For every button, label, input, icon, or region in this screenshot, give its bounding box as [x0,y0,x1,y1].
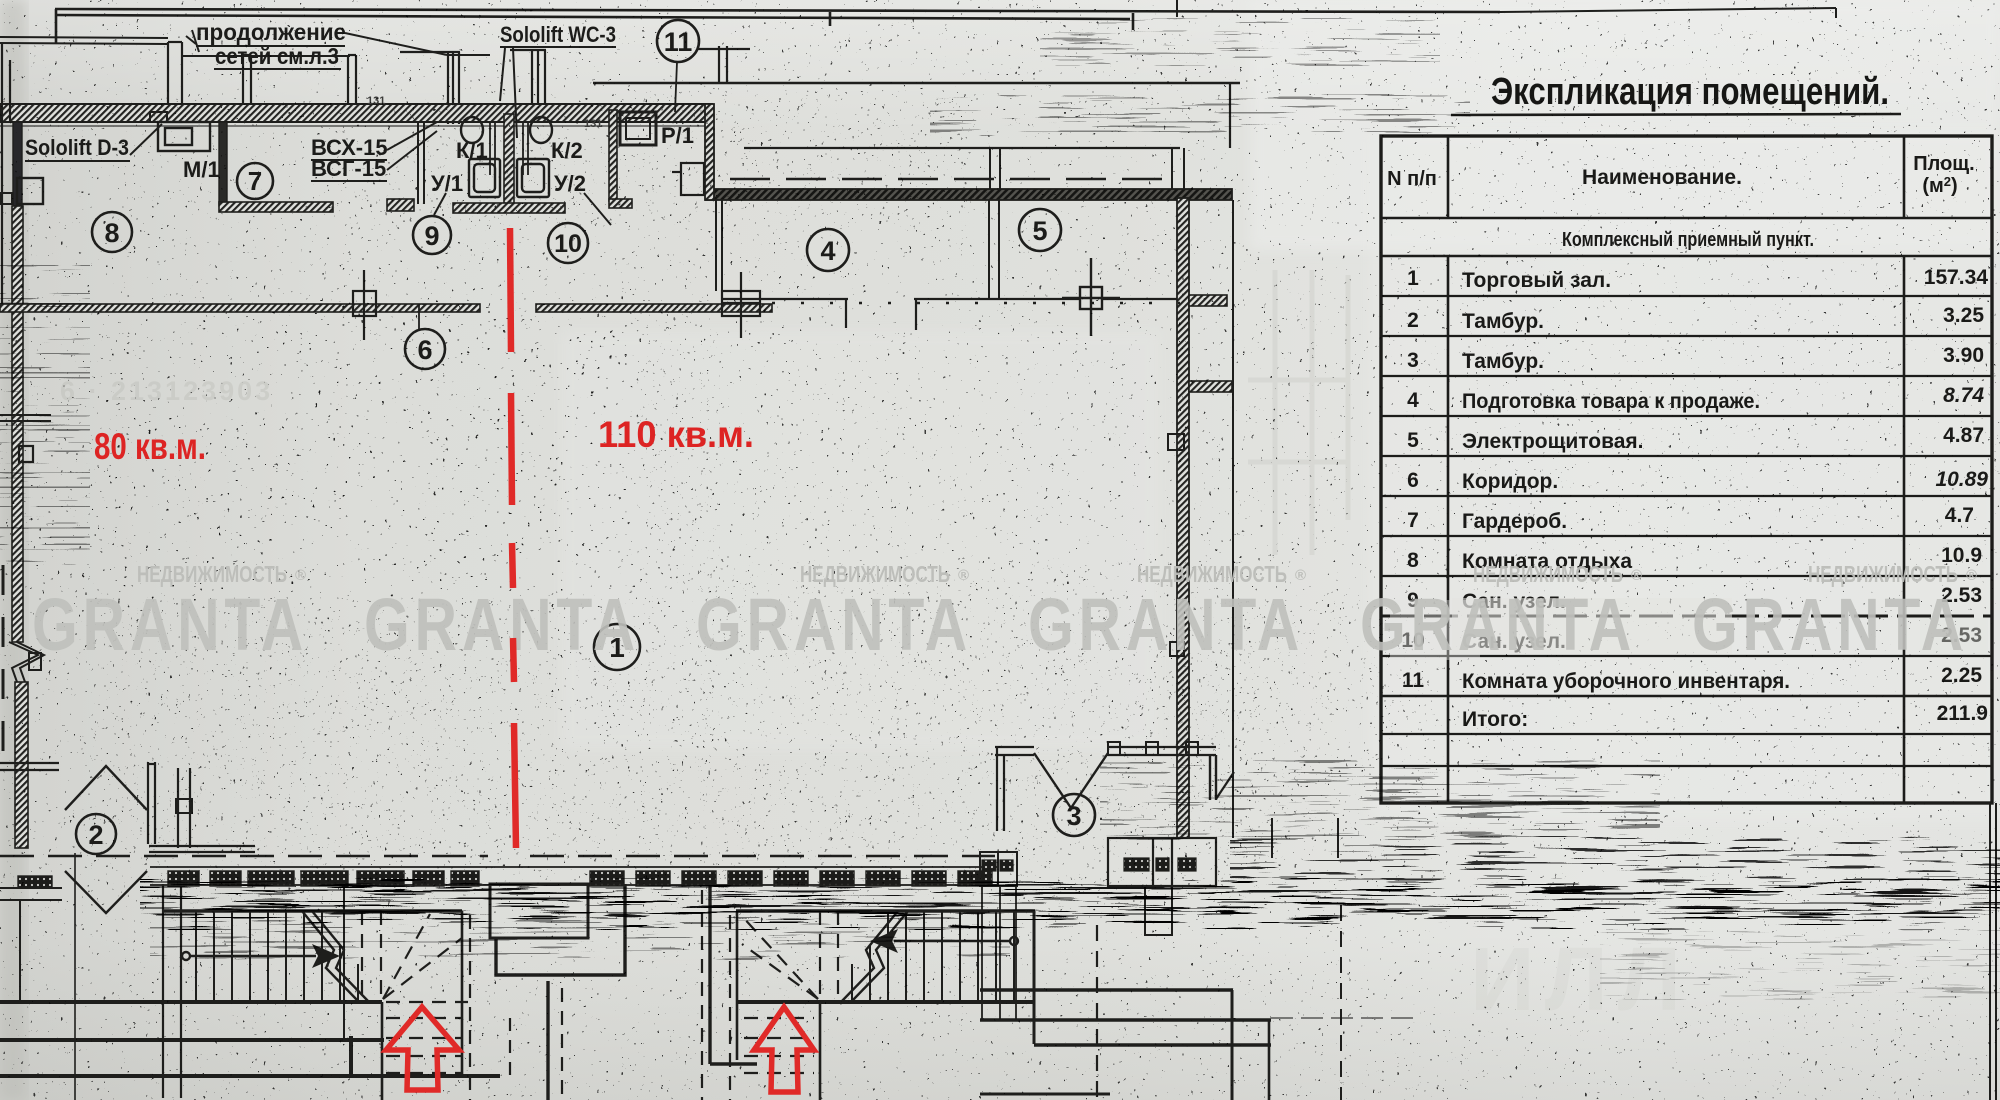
svg-text:80 кв.м.: 80 кв.м. [94,426,206,467]
svg-text:GRANTA: GRANTA [1028,583,1304,666]
svg-text:®: ® [958,567,969,584]
svg-text:GRANTA: GRANTA [32,583,308,666]
svg-text:®: ® [295,567,306,584]
svg-text:НЕДВИЖИМОСТЬ: НЕДВИЖИМОСТЬ [1808,561,1958,587]
svg-text:GRANTA: GRANTA [696,583,972,666]
svg-text:GRANTA: GRANTA [1360,583,1636,666]
svg-text:НЕДВИЖИМОСТЬ: НЕДВИЖИМОСТЬ [800,561,950,587]
svg-text:НЕДВИЖИМОСТЬ: НЕДВИЖИМОСТЬ [137,561,287,587]
svg-text:GRANTA: GRANTA [364,583,640,666]
svg-text:®: ® [1631,567,1642,584]
svg-text:НЕДВИЖИМОСТЬ: НЕДВИЖИМОСТЬ [1137,561,1287,587]
svg-text:®: ® [1295,567,1306,584]
svg-text:®: ® [1966,567,1977,584]
svg-text:110 кв.м.: 110 кв.м. [598,414,754,455]
svg-text:НЕДВИЖИМОСТЬ: НЕДВИЖИМОСТЬ [1473,561,1623,587]
svg-text:GRANTA: GRANTA [1692,583,1968,666]
